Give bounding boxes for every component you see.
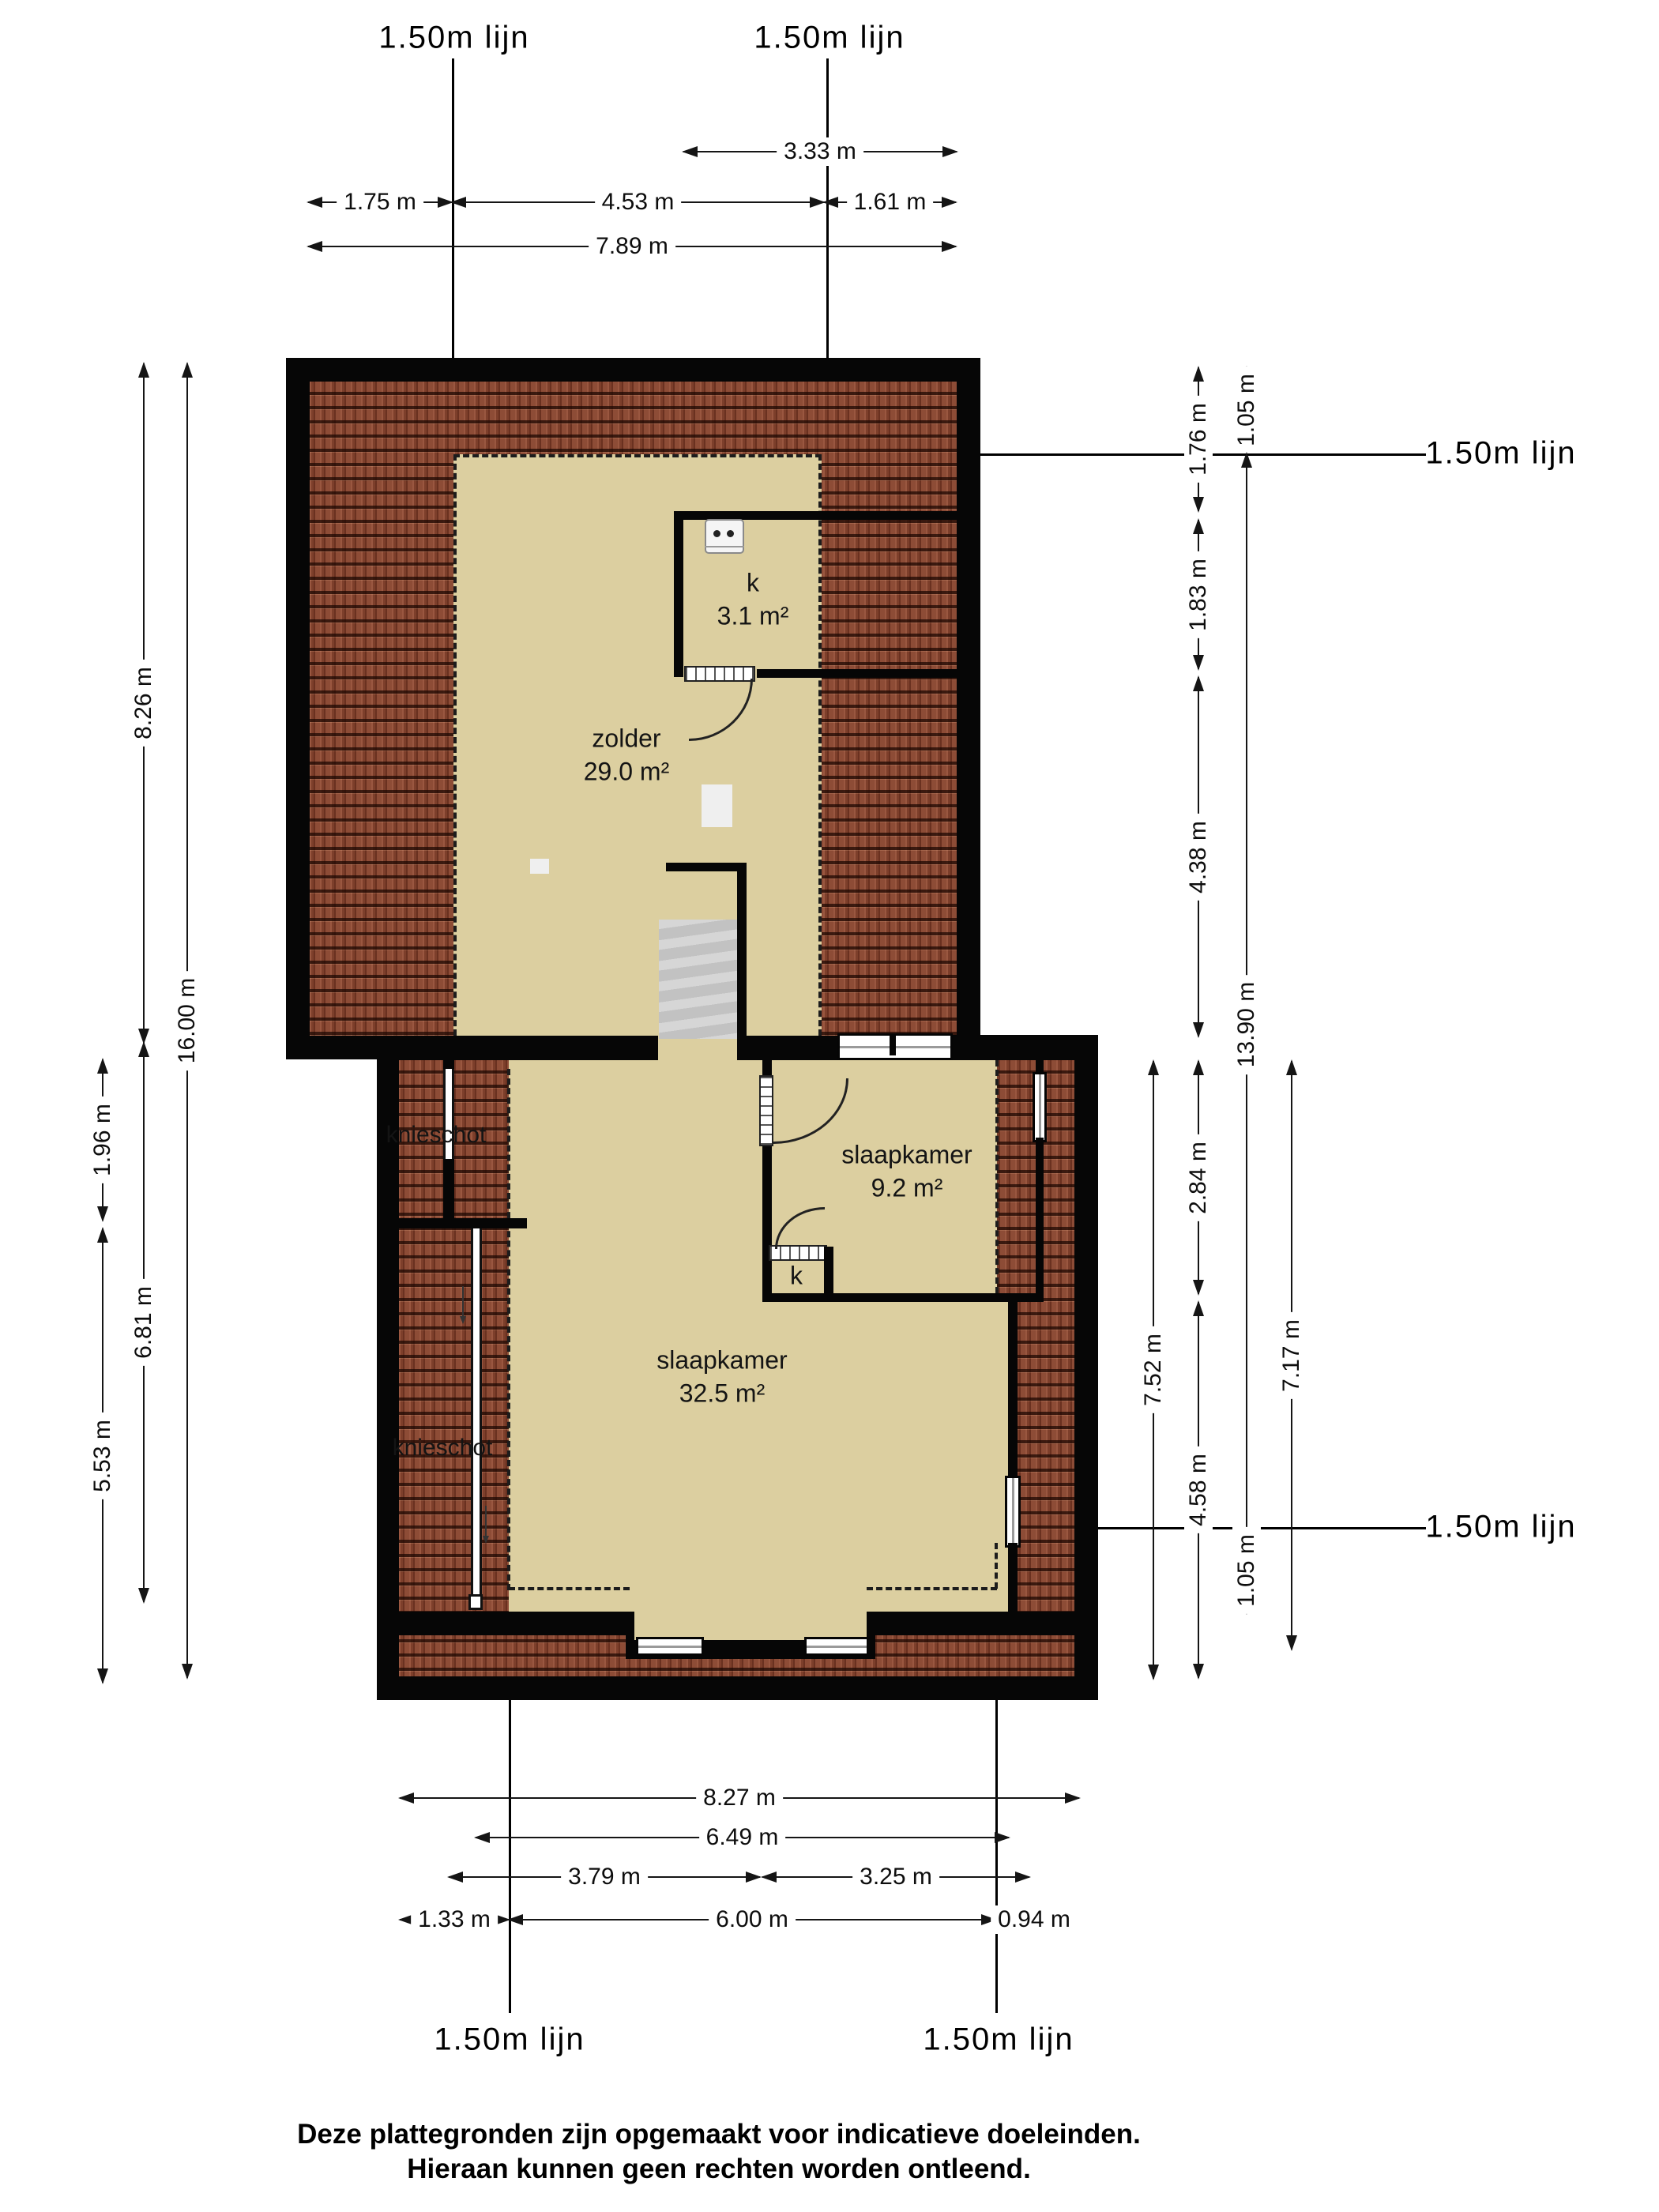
dim-arrow: [1148, 1665, 1159, 1680]
knieschot-b-line: [471, 1228, 482, 1598]
dim-arrow: [761, 1872, 777, 1883]
dimension-label: 1.05 m: [1232, 1527, 1261, 1614]
k-room-left-wall: [674, 511, 683, 677]
dormer-floor: [634, 1612, 867, 1640]
dimension-label: 8.27 m: [696, 1784, 783, 1812]
bedroom9-wall-stub: [762, 1060, 772, 1077]
height-reference-label: 1.50m lijn: [378, 21, 529, 56]
bottom-wall-right: [875, 1612, 1076, 1635]
dim-arrow: [97, 1227, 108, 1243]
dim-arrow: [1193, 1059, 1204, 1075]
dimension-label: 7.89 m: [589, 232, 675, 261]
dim-arrow: [507, 1914, 523, 1925]
dormer-step-left: [626, 1612, 634, 1659]
dimension-label: 2.84 m: [1184, 1134, 1213, 1221]
room-area-label: 32.5 m²: [679, 1379, 765, 1409]
dimension-label: 1.75 m: [337, 188, 423, 216]
dimension-label: 7.17 m: [1277, 1312, 1306, 1399]
dim-arrow: [97, 1668, 108, 1684]
dimension-label: 0.94 m: [991, 1905, 1078, 1934]
dim-arrow: [1148, 1059, 1159, 1075]
height-line-right-lower: [995, 1543, 998, 1589]
dim-arrow: [1241, 452, 1252, 468]
dim-arrow: [398, 1793, 414, 1804]
dim-arrow: [138, 1588, 149, 1604]
dim-arrow: [746, 1872, 762, 1883]
dimension-label: 4.58 m: [1184, 1446, 1213, 1533]
dim-arrow: [474, 1832, 490, 1843]
floorplan-canvas: 3.33 m1.75 m4.53 m1.61 m7.89 m8.27 m6.49…: [0, 0, 1659, 2212]
knieschot-right-bottom: [1008, 1543, 1018, 1612]
dimension-label: 1.83 m: [1184, 551, 1213, 638]
room-area-label: 9.2 m²: [871, 1174, 943, 1203]
knieschot-a-wall: [443, 1159, 454, 1218]
dim-arrow: [138, 362, 149, 378]
room-area-label: 29.0 m²: [584, 758, 669, 787]
room-label: zolder: [592, 724, 660, 754]
room-label: slaapkamer: [841, 1141, 972, 1170]
dim-arrow: [1193, 518, 1204, 534]
dimension-label: 6.81 m: [130, 1279, 158, 1366]
roof-slope-arrow: [462, 1286, 464, 1319]
dormer-window-right: [804, 1637, 870, 1656]
dimension-label: 1.76 m: [1184, 396, 1213, 483]
room-label: k: [747, 569, 759, 598]
dim-arrow: [1193, 366, 1204, 382]
dimension-label: 6.49 m: [699, 1823, 786, 1852]
dim-arrow: [1193, 675, 1204, 691]
height-reference-line: [826, 58, 829, 358]
dim-arrow: [682, 146, 698, 157]
dim-arrow: [182, 362, 193, 378]
room-label: slaapkamer: [656, 1346, 787, 1375]
dimension-label: 16.00 m: [173, 971, 201, 1070]
knieschot-right-mid: [1036, 1138, 1044, 1302]
knieschot-label: knieschot: [393, 1435, 493, 1461]
height-line-bottom-right: [867, 1587, 997, 1590]
height-reference-line: [509, 1700, 511, 2013]
dim-arrow: [97, 1206, 108, 1222]
dimension-label: 3.79 m: [561, 1863, 648, 1891]
dim-arrow: [1193, 497, 1204, 513]
dim-arrow: [97, 1058, 108, 1074]
stair-landing: [658, 1036, 737, 1060]
skylight-large: [702, 784, 732, 827]
dim-arrow: [1193, 1300, 1204, 1316]
stair-wall-right: [737, 863, 747, 1041]
dim-arrow: [138, 1041, 149, 1057]
ventilation-unit: [705, 519, 744, 554]
knieschot-label: knieschot: [386, 1122, 487, 1149]
dim-arrow: [1015, 1872, 1031, 1883]
vent-dot: [727, 530, 734, 537]
dim-arrow: [307, 197, 322, 208]
vent-lip: [705, 546, 744, 547]
dimension-label: 1.96 m: [88, 1097, 117, 1183]
height-reference-label: 1.50m lijn: [1425, 1510, 1576, 1545]
dim-arrow: [1193, 1280, 1204, 1296]
knieschot-right-window-upper: [1033, 1072, 1047, 1142]
height-reference-label: 1.50m lijn: [434, 2022, 585, 2058]
height-reference-label: 1.50m lijn: [923, 2022, 1074, 2058]
height-line-right-bedroom9: [995, 1060, 999, 1293]
dim-arrow: [1286, 1059, 1297, 1075]
bedroom9-west-wall: [762, 1143, 772, 1302]
height-reference-line: [1098, 1527, 1426, 1529]
dim-arrow: [1193, 1664, 1204, 1680]
height-line-left: [507, 1069, 510, 1590]
bedroom9-door: [759, 1075, 773, 1146]
dim-arrow: [1193, 1022, 1204, 1038]
dim-arrow: [450, 197, 466, 208]
bottom-wall-left: [399, 1612, 626, 1635]
dim-arrow: [1065, 1793, 1081, 1804]
footer-disclaimer-line2: Hieraan kunnen geen rechten worden ontle…: [407, 2154, 1031, 2185]
dimension-label: 4.38 m: [1184, 814, 1213, 901]
dormer-step-right: [867, 1612, 875, 1659]
dimension-label: 4.53 m: [595, 188, 682, 216]
height-reference-line: [452, 58, 454, 358]
dimension-label: 3.33 m: [777, 137, 863, 166]
dim-arrow: [822, 197, 838, 208]
dim-arrow: [1193, 655, 1204, 671]
height-reference-label: 1.50m lijn: [754, 21, 905, 56]
knieschot-b-endcap: [468, 1594, 483, 1610]
dimension-label: 6.00 m: [709, 1905, 796, 1934]
dimension-label: 5.53 m: [88, 1413, 117, 1499]
height-line-bottom-left: [509, 1587, 630, 1590]
dimension-label: 7.52 m: [1139, 1326, 1168, 1413]
dimension-label: 8.26 m: [130, 660, 158, 747]
dim-arrow: [942, 146, 958, 157]
dimension-label: 1.61 m: [847, 188, 934, 216]
stair-wall-top: [666, 863, 747, 871]
room-area-label: 3.1 m²: [717, 602, 789, 631]
dim-arrow: [307, 241, 322, 252]
dormer-window-left: [636, 1637, 704, 1656]
height-reference-label: 1.50m lijn: [1425, 436, 1576, 472]
k-room-bottom-wall: [757, 669, 957, 678]
lower-building-topright-wall: [948, 1035, 1098, 1060]
junction-window-mullion: [890, 1033, 896, 1055]
knieschot-right-window-lower: [1005, 1476, 1021, 1548]
knieschot-right-lower: [1008, 1302, 1018, 1476]
staircase: [659, 920, 737, 1039]
dim-arrow: [447, 1872, 463, 1883]
knieschot-divider-wall: [377, 1218, 527, 1228]
dim-arrow: [942, 197, 957, 208]
footer-disclaimer-line1: Deze plattegronden zijn opgemaakt voor i…: [297, 2119, 1141, 2150]
bedrooms-divider-wall: [762, 1293, 1044, 1302]
dim-arrow: [1286, 1635, 1297, 1651]
knieschot-right-upper: [1036, 1060, 1044, 1072]
vent-dot: [713, 530, 720, 537]
dimension-label: 1.33 m: [411, 1905, 498, 1934]
dim-arrow: [182, 1664, 193, 1680]
skylight-small: [530, 859, 549, 874]
dim-arrow: [942, 241, 957, 252]
dimension-label: 1.05 m: [1232, 367, 1261, 453]
height-reference-line: [995, 1700, 998, 2013]
room-label: k: [790, 1262, 803, 1291]
knieschot-a-top: [443, 1060, 454, 1069]
dimension-label: 3.25 m: [852, 1863, 939, 1891]
roof-slope-arrow: [485, 1506, 487, 1539]
dim-arrow: [995, 1832, 1010, 1843]
dimension-label: 13.90 m: [1232, 975, 1261, 1074]
